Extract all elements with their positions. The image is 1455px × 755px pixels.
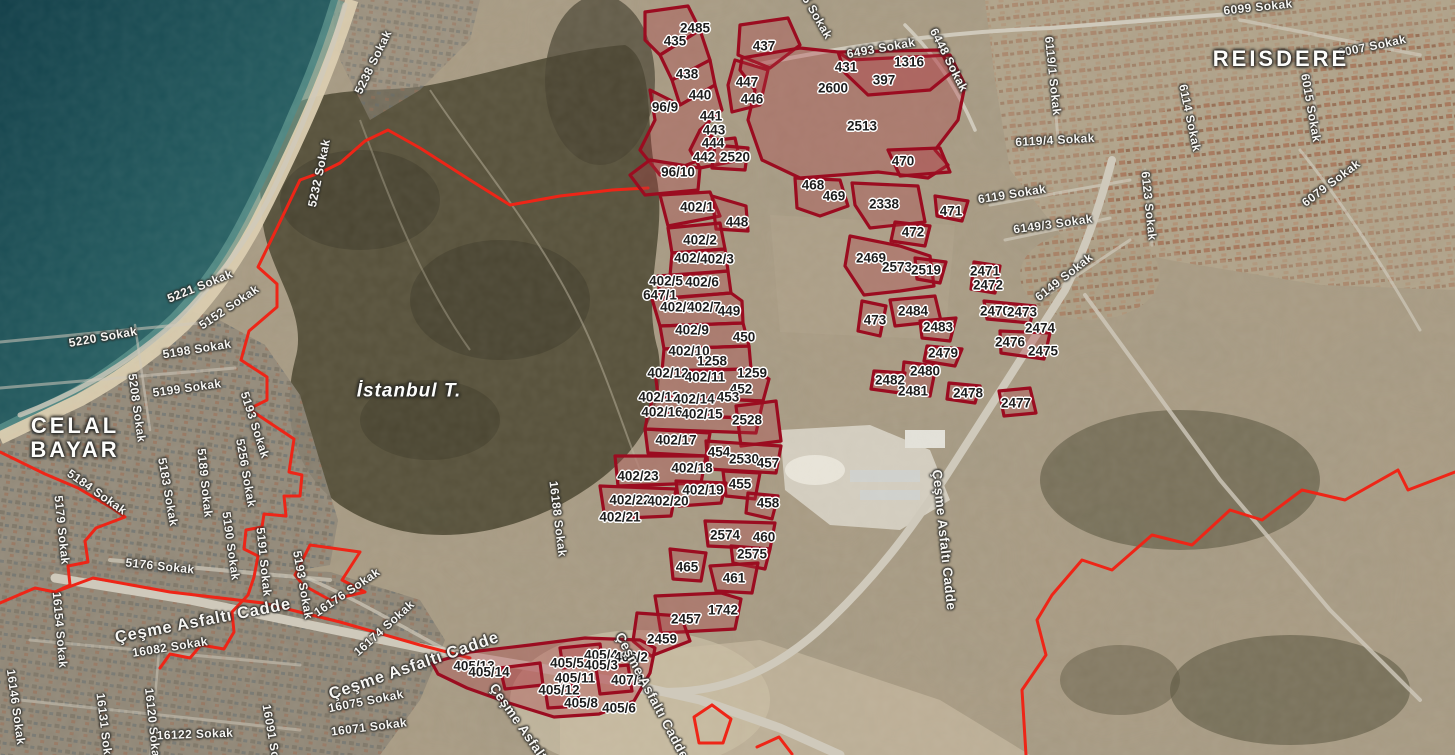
satellite-basemap (0, 0, 1455, 755)
parcel-polygon[interactable] (999, 388, 1036, 416)
parcel-polygon[interactable] (888, 148, 950, 176)
parcel-polygon[interactable] (1000, 331, 1050, 359)
parcel-polygon[interactable] (560, 644, 603, 668)
parcel-polygon[interactable] (596, 665, 632, 694)
parcel-polygon[interactable] (971, 262, 1000, 293)
parcel-polygon[interactable] (705, 521, 775, 549)
parcel-polygon[interactable] (935, 196, 968, 221)
parcel-polygon[interactable] (947, 383, 980, 403)
parcel-polygon[interactable] (676, 481, 726, 506)
parcel-polygon[interactable] (924, 346, 962, 366)
parcel-polygon[interactable] (871, 371, 905, 393)
parcel-polygon[interactable] (858, 301, 886, 336)
parcel-polygon[interactable] (710, 563, 758, 593)
parcel-polygon[interactable] (645, 429, 710, 456)
parcel-polygon[interactable] (915, 258, 946, 283)
parcel-polygon[interactable] (901, 362, 936, 396)
parcel-polygon[interactable] (706, 441, 781, 473)
parcel-polygon[interactable] (736, 401, 781, 446)
parcel-polygon[interactable] (662, 346, 751, 371)
parcel-polygon[interactable] (746, 493, 778, 519)
parcel-polygon[interactable] (795, 178, 848, 216)
parcel-polygon[interactable] (630, 160, 700, 195)
parcel-polygon[interactable] (920, 318, 956, 341)
map-canvas[interactable]: 248543543743844096/9441443444442252096/1… (0, 0, 1455, 755)
parcel-polygon[interactable] (600, 486, 676, 519)
parcel-polygon[interactable] (984, 301, 1035, 323)
parcel-polygon[interactable] (670, 549, 706, 581)
parcel-polygon[interactable] (891, 222, 930, 246)
parcel-polygon[interactable] (652, 293, 743, 326)
parcel-polygon[interactable] (500, 663, 543, 689)
parcel-polygon[interactable] (712, 145, 748, 170)
parcel-polygon[interactable] (545, 685, 580, 708)
